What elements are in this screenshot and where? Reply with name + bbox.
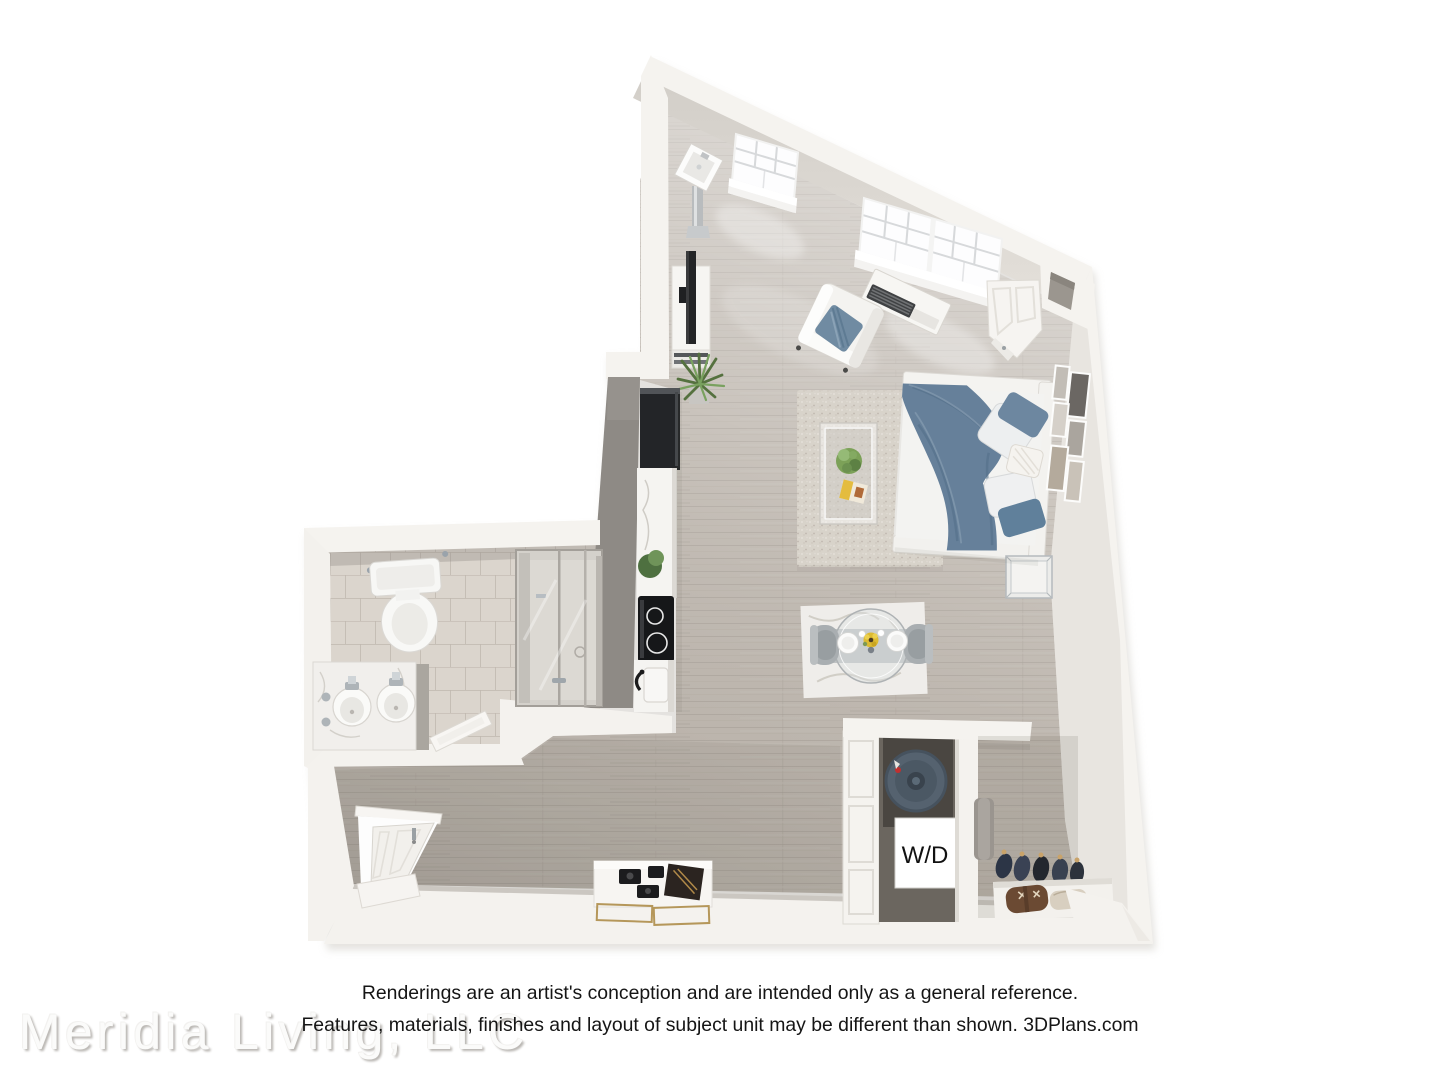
svg-text:W/D: W/D — [902, 842, 949, 869]
